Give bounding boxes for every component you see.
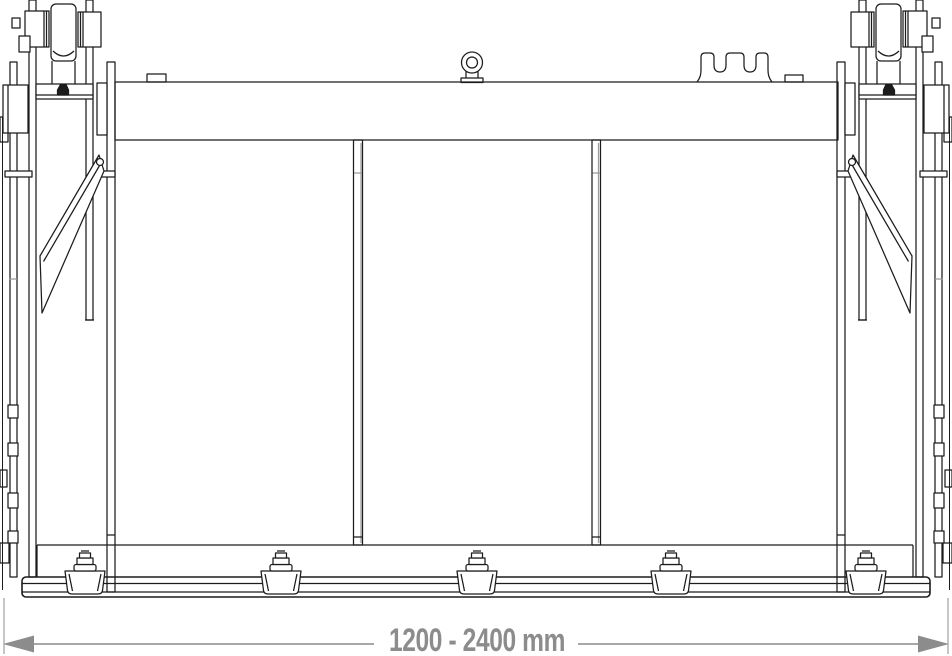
- clamp-foot: [457, 551, 497, 594]
- dimension-annotation: 1200 - 2400 mm: [3, 598, 949, 656]
- clamp-feet: [65, 551, 886, 594]
- divider-post-right: [592, 140, 601, 545]
- lifting-eye: [461, 52, 483, 83]
- lifting-eye-ring-inner: [467, 57, 478, 68]
- dimension-arrow-left-icon: [3, 636, 34, 653]
- beam-tab-right: [785, 75, 803, 82]
- side-assembly-left: [0, 0, 115, 592]
- clamp-foot: [846, 551, 886, 594]
- divider-outline: [592, 140, 601, 545]
- beam-tab-left: [147, 74, 166, 82]
- divider-post-left: [354, 140, 363, 545]
- technical-drawing-canvas: 1200 - 2400 mm: [0, 0, 952, 656]
- side-assembly-right: [837, 0, 952, 592]
- clamp-foot: [651, 551, 691, 594]
- clamp-foot: [261, 551, 301, 594]
- dimension-arrow-right-icon: [918, 636, 949, 653]
- top-beam: [115, 82, 838, 140]
- frame-drawing: [0, 0, 952, 597]
- crown-bracket: [697, 53, 772, 82]
- dimension-label: 1200 - 2400 mm: [389, 622, 565, 656]
- clamp-foot: [65, 551, 105, 594]
- lifting-eye-ring-outer: [462, 52, 483, 73]
